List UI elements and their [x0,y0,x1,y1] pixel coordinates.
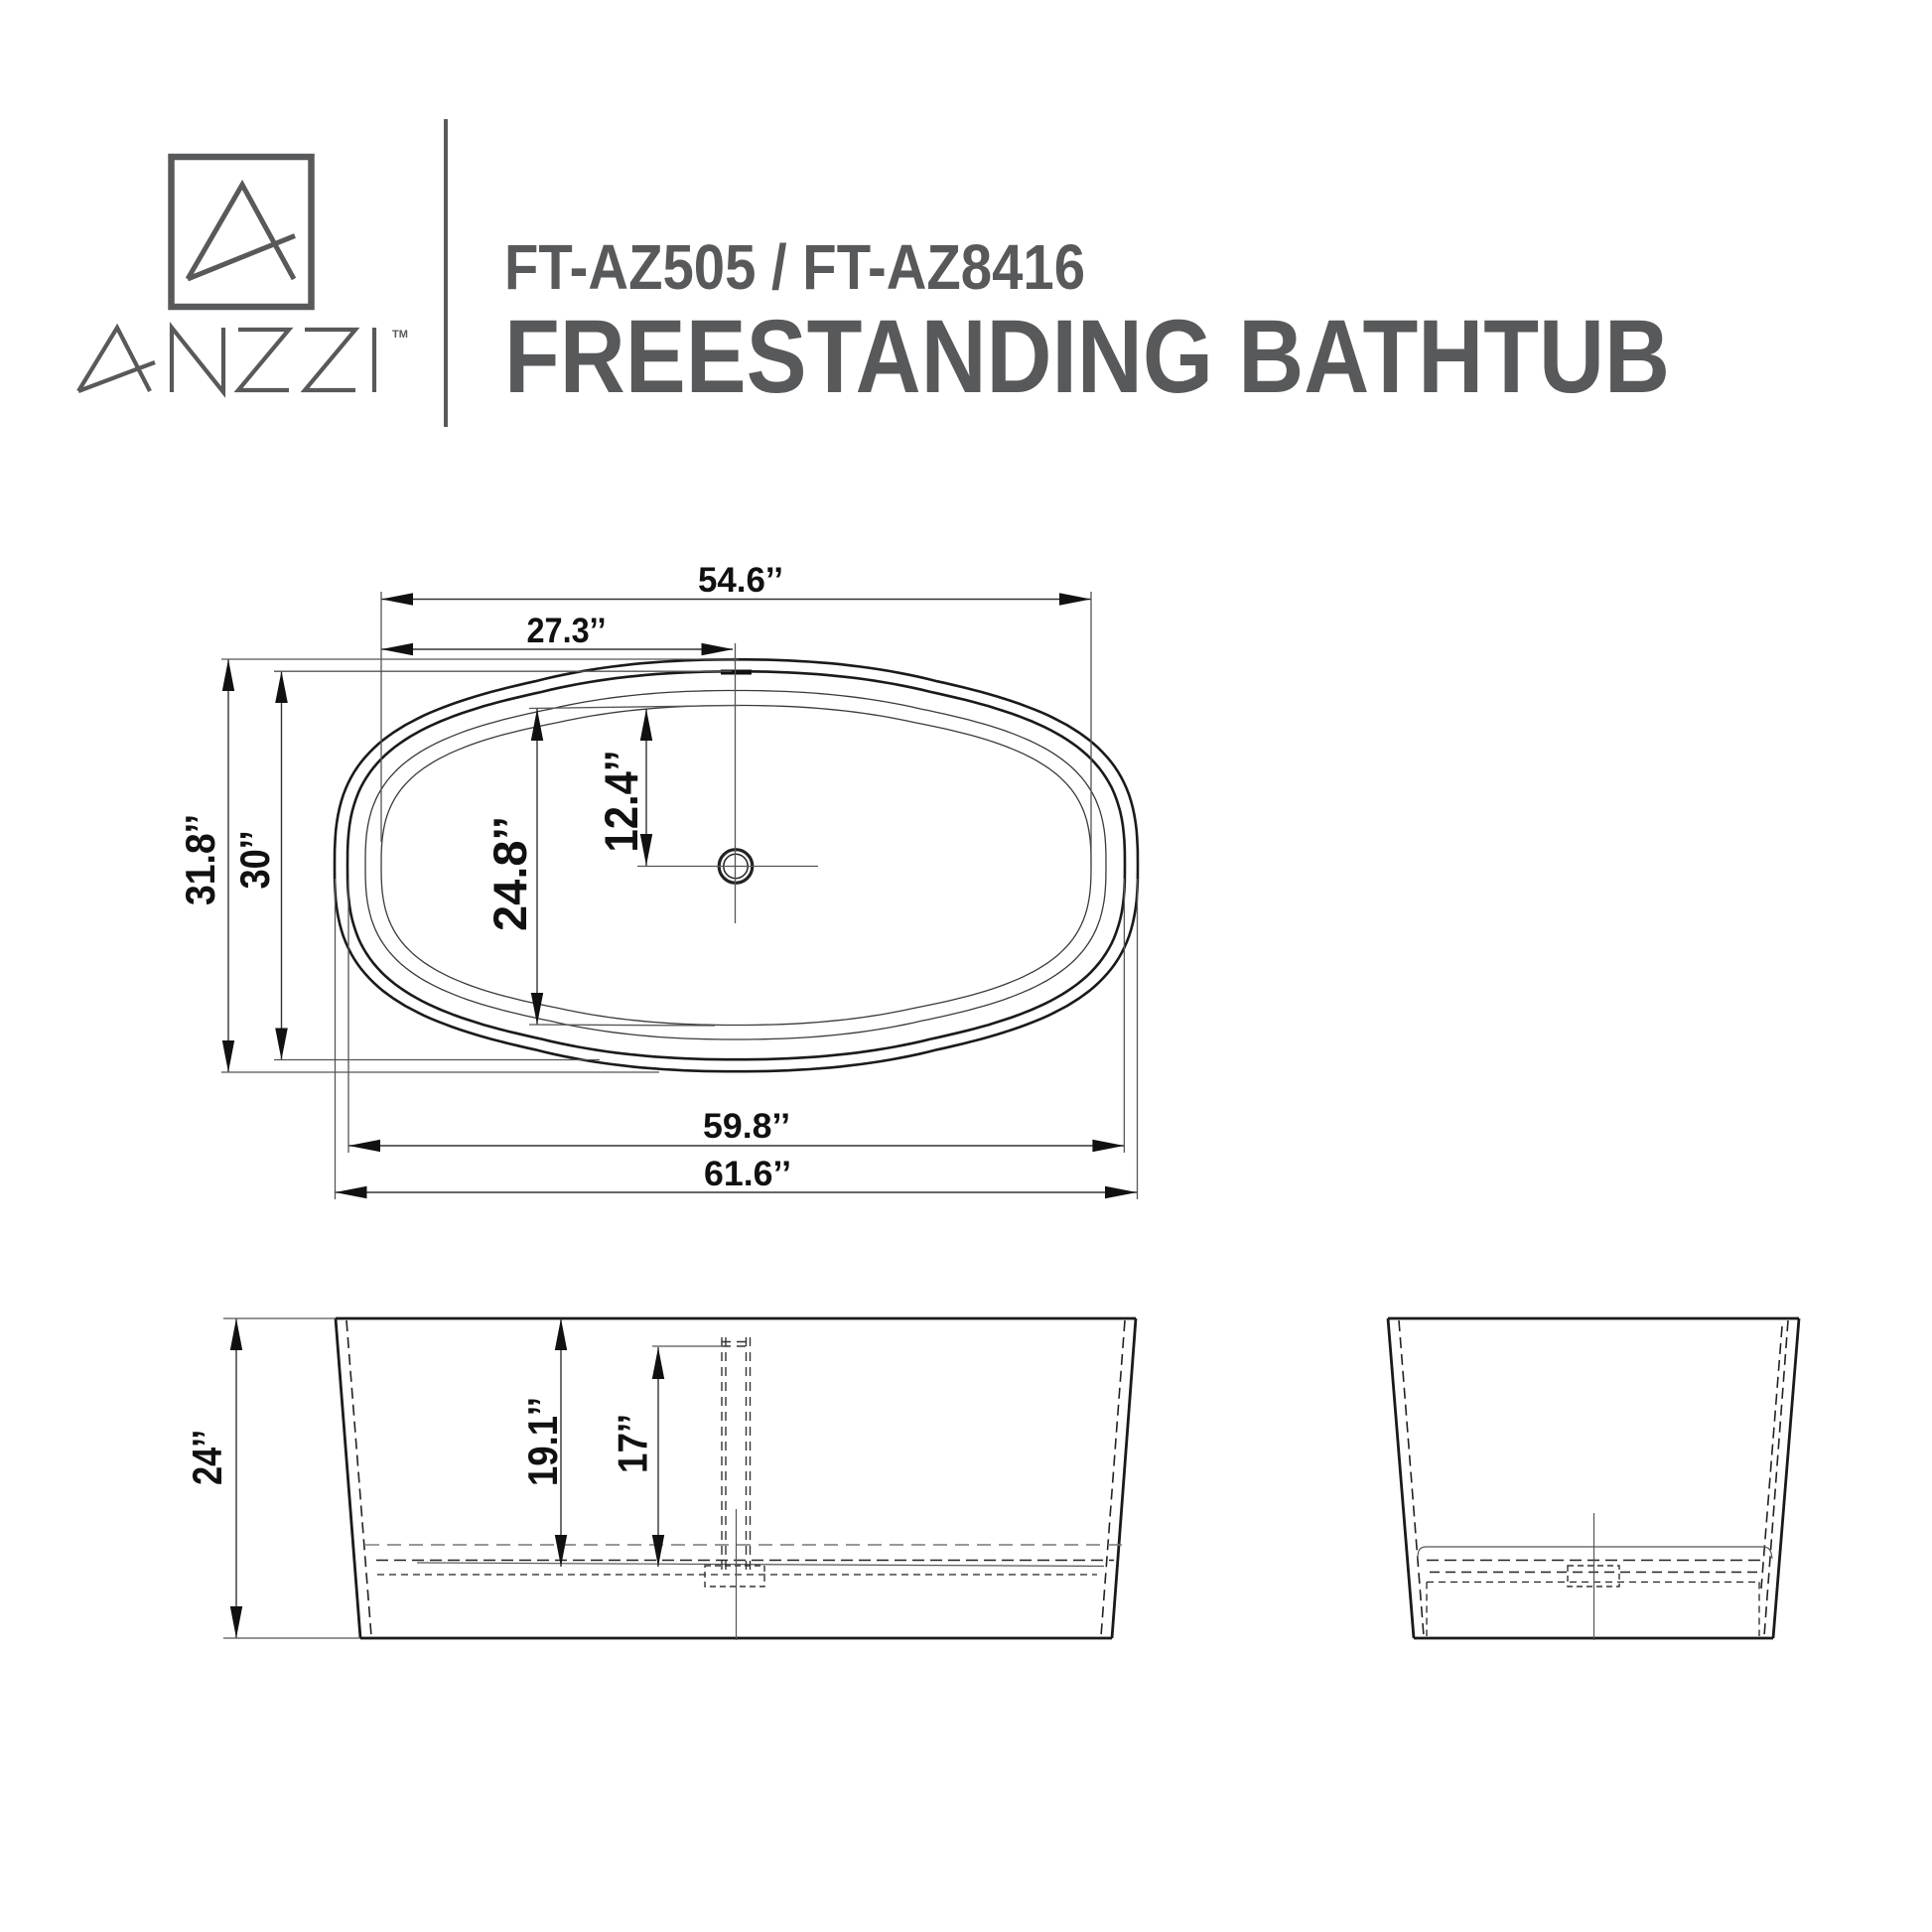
svg-text:FREESTANDING BATHTUB: FREESTANDING BATHTUB [504,299,1670,415]
svg-text:24.8’’: 24.8’’ [483,816,536,931]
svg-text:61.6’’: 61.6’’ [704,1155,791,1193]
svg-text:19.1’’: 19.1’’ [519,1397,566,1486]
svg-text:12.4’’: 12.4’’ [595,751,647,853]
svg-text:17’’: 17’’ [610,1414,656,1473]
svg-text:TM: TM [392,329,408,341]
svg-text:31.8’’: 31.8’’ [177,814,223,905]
svg-text:27.3’’: 27.3’’ [527,612,607,650]
svg-text:24’’: 24’’ [184,1430,230,1485]
svg-text:59.8’’: 59.8’’ [703,1107,790,1146]
svg-text:FT-AZ505 / FT-AZ8416: FT-AZ505 / FT-AZ8416 [504,231,1085,303]
svg-text:30’’: 30’’ [231,831,278,890]
svg-text:54.6’’: 54.6’’ [698,561,783,600]
